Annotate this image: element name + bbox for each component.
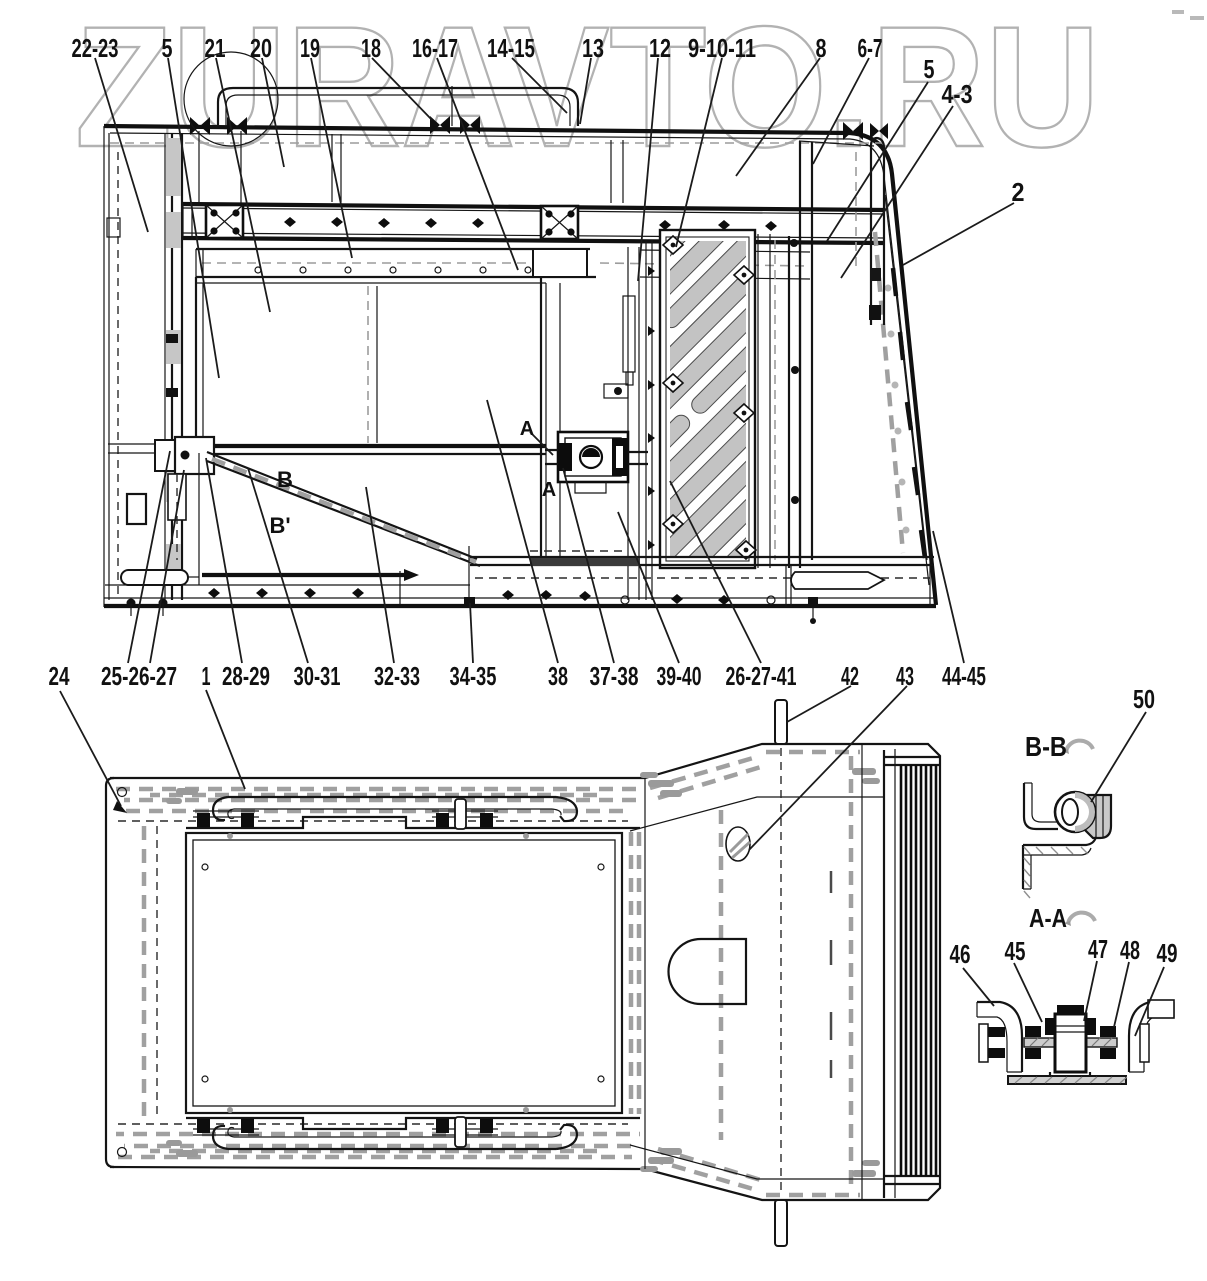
svg-text:24: 24 [49,661,70,691]
svg-text:A: A [520,418,534,440]
svg-text:9-10-11: 9-10-11 [688,33,756,63]
svg-text:B-B: B-B [1025,731,1067,762]
svg-text:21: 21 [205,33,226,63]
svg-text:39-40: 39-40 [657,661,702,691]
svg-text:8: 8 [816,33,827,63]
svg-text:18: 18 [361,33,381,63]
svg-text:48: 48 [1120,935,1140,965]
svg-text:32-33: 32-33 [374,661,420,691]
svg-text:A-A: A-A [1029,903,1067,933]
svg-text:A: A [542,479,556,501]
svg-text:30-31: 30-31 [294,661,341,691]
svg-text:42: 42 [841,661,859,691]
svg-text:19: 19 [300,33,320,63]
svg-text:5: 5 [162,33,173,63]
svg-text:12: 12 [649,33,671,63]
svg-text:26-27-41: 26-27-41 [726,661,797,691]
svg-text:13: 13 [582,33,604,63]
svg-text:25-26-27: 25-26-27 [101,661,177,691]
svg-text:34-35: 34-35 [450,661,497,691]
svg-text:47: 47 [1088,934,1108,964]
svg-text:22-23: 22-23 [72,33,119,63]
svg-text:4-3: 4-3 [942,79,973,109]
svg-text:2: 2 [1012,177,1025,207]
svg-text:37-38: 37-38 [590,661,639,691]
svg-text:50: 50 [1133,684,1155,714]
svg-text:B': B' [269,513,290,538]
svg-text:45: 45 [1005,936,1026,966]
svg-text:20: 20 [250,33,272,63]
svg-text:43: 43 [896,661,914,691]
svg-text:46: 46 [950,939,971,969]
svg-text:14-15: 14-15 [487,33,535,63]
svg-text:1: 1 [202,661,211,691]
svg-text:6-7: 6-7 [858,33,883,63]
svg-text:16-17: 16-17 [412,33,458,63]
svg-text:44-45: 44-45 [942,661,986,691]
svg-text:28-29: 28-29 [222,661,270,691]
svg-text:38: 38 [548,661,568,691]
svg-text:5: 5 [924,54,935,84]
svg-text:B: B [277,467,293,492]
svg-text:49: 49 [1157,938,1178,968]
